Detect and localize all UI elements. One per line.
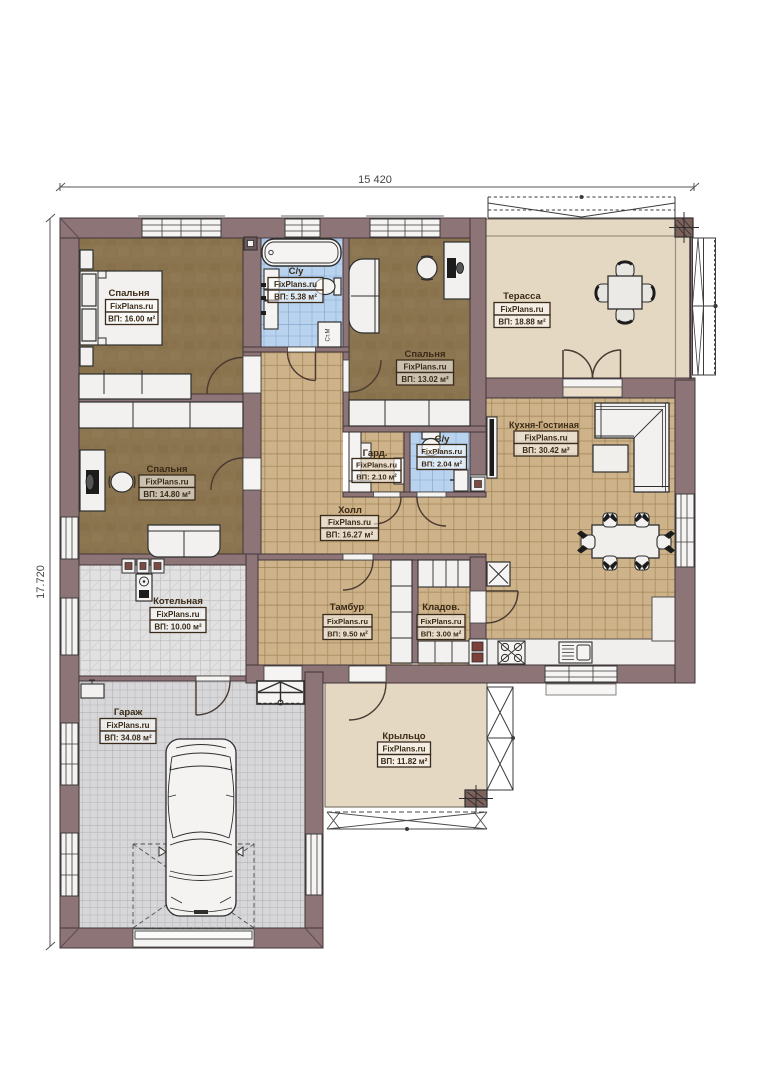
svg-text:FixPlans.ru: FixPlans.ru [327, 617, 368, 626]
svg-text:Гараж: Гараж [114, 707, 143, 718]
svg-text:FixPlans.ru: FixPlans.ru [328, 518, 371, 527]
svg-text:ВП: 2.04 м²: ВП: 2.04 м² [421, 460, 462, 469]
svg-text:Спальня: Спальня [404, 349, 445, 360]
svg-text:Ст.М: Ст.М [326, 328, 332, 341]
svg-text:С/у: С/у [289, 266, 305, 277]
svg-text:FixPlans.ru: FixPlans.ru [421, 447, 462, 456]
svg-text:Гард.: Гард. [363, 448, 388, 459]
svg-text:ВП: 16.27 м²: ВП: 16.27 м² [326, 531, 374, 540]
svg-text:FixPlans.ru: FixPlans.ru [500, 305, 543, 314]
svg-text:FixPlans.ru: FixPlans.ru [524, 434, 567, 443]
svg-text:ВП: 13.02 м²: ВП: 13.02 м² [401, 375, 449, 384]
svg-text:ВП: 3.00 м²: ВП: 3.00 м² [421, 630, 462, 639]
svg-text:17.720: 17.720 [35, 565, 47, 599]
svg-text:Котельная: Котельная [153, 596, 203, 607]
svg-text:Крыльцо: Крыльцо [382, 731, 425, 742]
svg-text:FixPlans.ru: FixPlans.ru [156, 610, 199, 619]
svg-text:FixPlans.ru: FixPlans.ru [421, 617, 462, 626]
svg-text:ВП: 30.42 м²: ВП: 30.42 м² [522, 446, 570, 455]
svg-text:ВП: 11.82 м²: ВП: 11.82 м² [381, 757, 428, 766]
svg-text:ВП: 14.80 м²: ВП: 14.80 м² [143, 490, 191, 499]
svg-text:ВП: 9.50 м²: ВП: 9.50 м² [327, 630, 368, 639]
svg-text:Кухня-Гостиная: Кухня-Гостиная [509, 420, 579, 430]
svg-text:ВП: 34.08 м²: ВП: 34.08 м² [104, 734, 152, 743]
svg-text:FixPlans.ru: FixPlans.ru [356, 461, 397, 470]
svg-text:ВП: 16.00 м²: ВП: 16.00 м² [108, 315, 156, 324]
svg-text:Холл: Холл [338, 505, 362, 516]
svg-text:Тамбур: Тамбур [330, 602, 365, 613]
svg-text:FixPlans.ru: FixPlans.ru [110, 302, 153, 311]
svg-text:FixPlans.ru: FixPlans.ru [274, 280, 317, 289]
svg-text:ВП: 10.00 м²: ВП: 10.00 м² [154, 623, 202, 632]
svg-text:Терасса: Терасса [503, 291, 541, 302]
svg-text:FixPlans.ru: FixPlans.ru [106, 721, 149, 730]
svg-text:15 420: 15 420 [358, 174, 392, 186]
svg-text:Кладов.: Кладов. [422, 602, 459, 613]
svg-text:FixPlans.ru: FixPlans.ru [403, 363, 446, 372]
svg-text:Спальня: Спальня [146, 464, 187, 475]
svg-text:Спальня: Спальня [108, 288, 149, 299]
svg-text:С/у: С/у [435, 434, 451, 445]
svg-text:FixPlans.ru: FixPlans.ru [382, 745, 425, 754]
svg-text:FixPlans.ru: FixPlans.ru [145, 478, 188, 487]
svg-text:ВП: 2.10 м²: ВП: 2.10 м² [356, 473, 397, 482]
svg-text:ВП: 5.38 м²: ВП: 5.38 м² [274, 293, 317, 302]
svg-text:ВП: 18.88 м²: ВП: 18.88 м² [498, 318, 546, 327]
